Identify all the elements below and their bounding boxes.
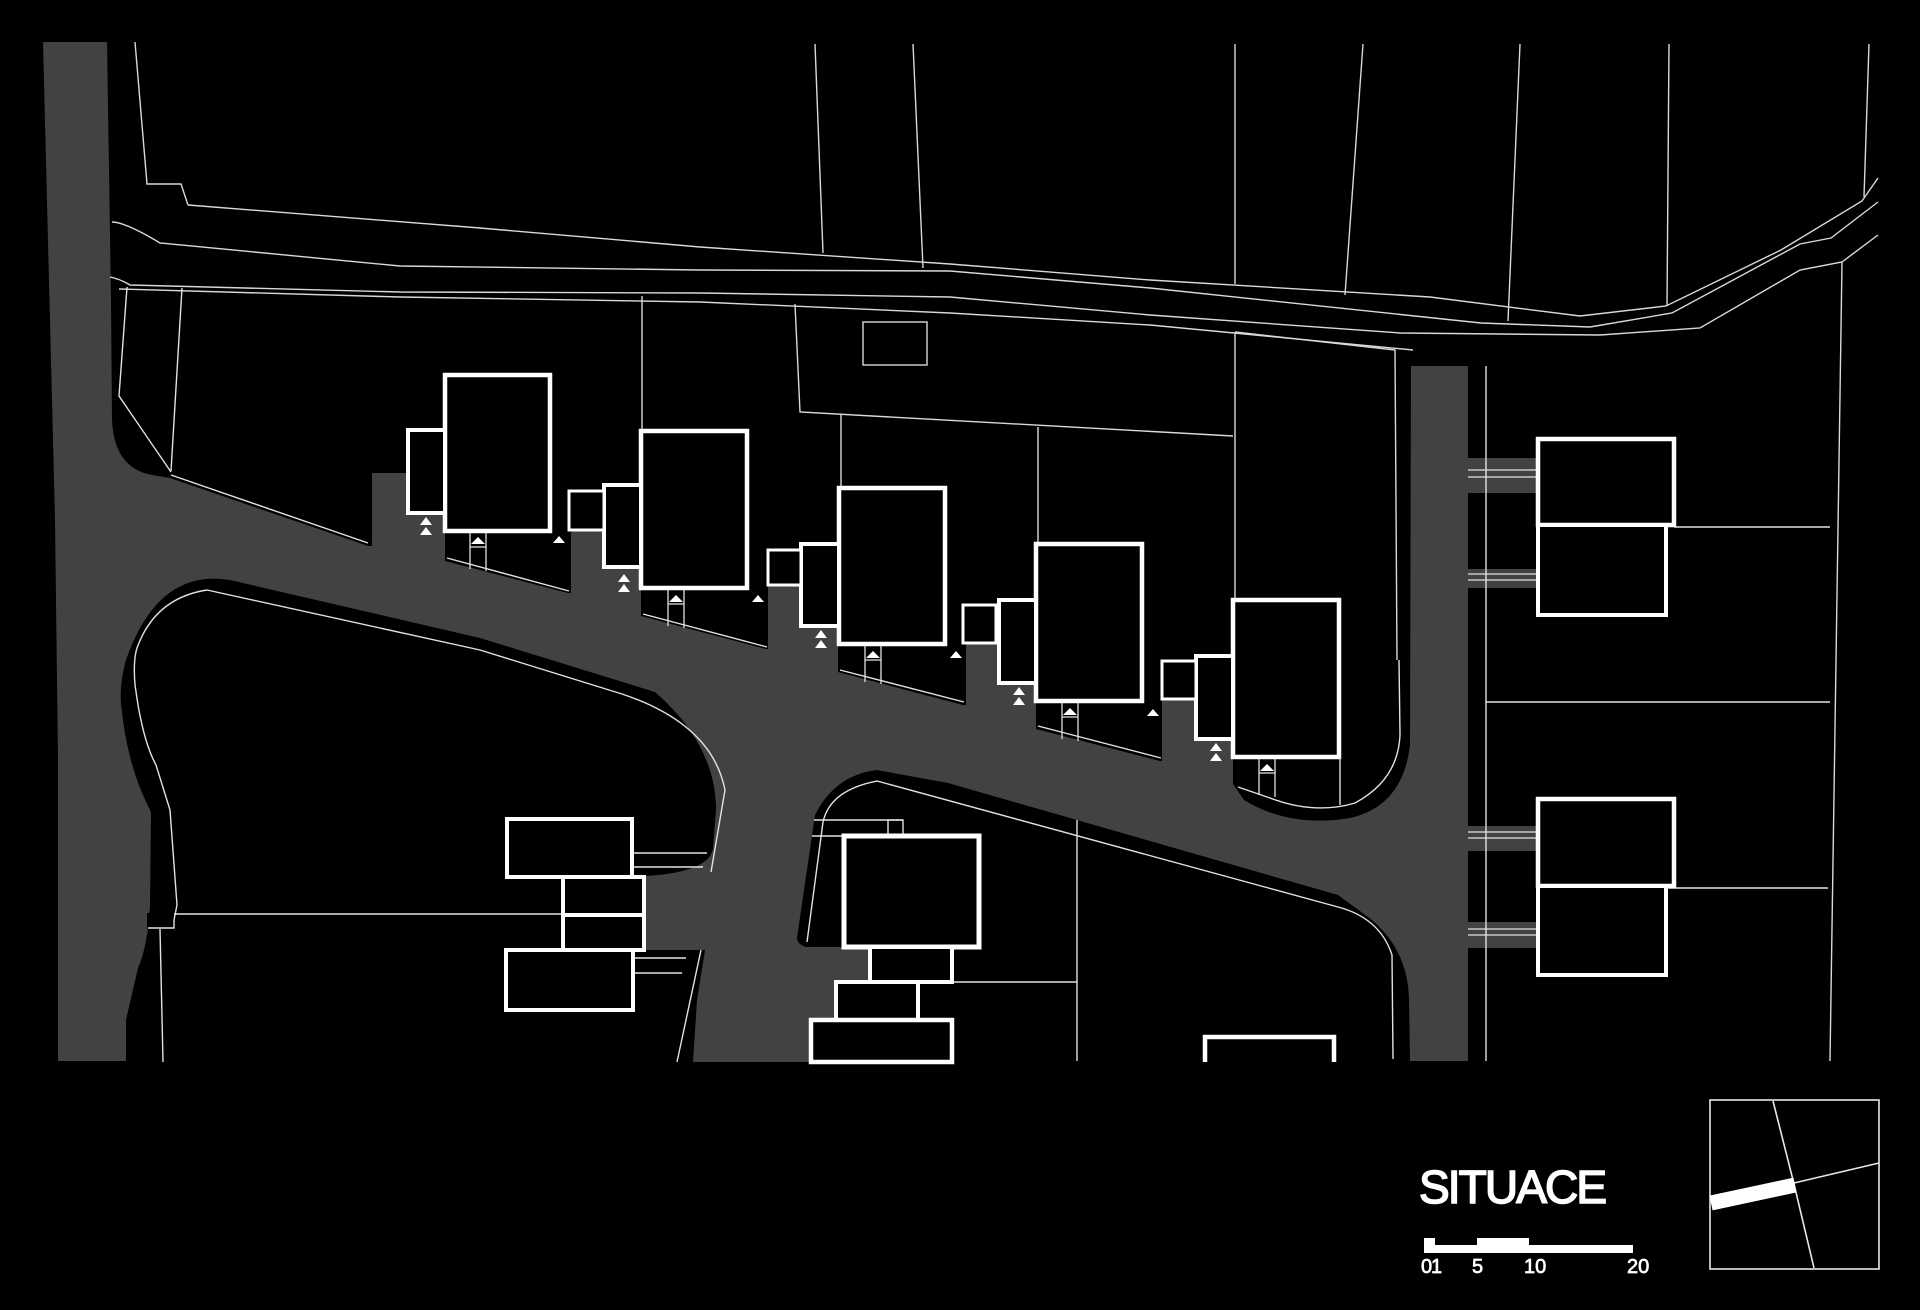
svg-text:5: 5 bbox=[1472, 1256, 1483, 1278]
svg-text:10: 10 bbox=[1524, 1256, 1546, 1278]
svg-text:SITUACE: SITUACE bbox=[1419, 1161, 1607, 1213]
svg-text:20: 20 bbox=[1627, 1256, 1649, 1278]
svg-text:1: 1 bbox=[1431, 1256, 1442, 1278]
